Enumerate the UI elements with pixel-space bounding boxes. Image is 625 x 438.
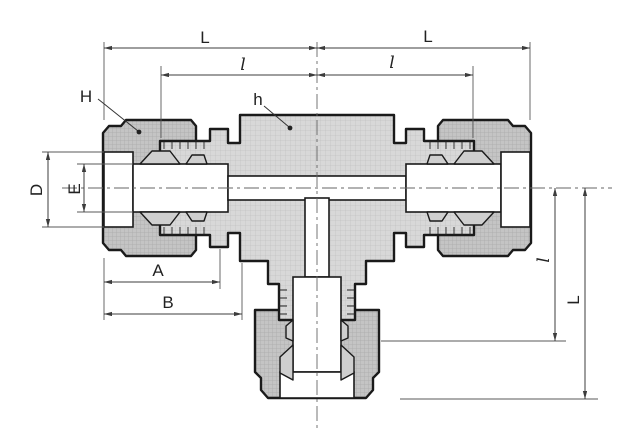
dim-label-L-right: L (564, 295, 583, 304)
dim-label-E: E (65, 183, 84, 194)
dim-label-l-right: l (534, 257, 554, 262)
dim-label-D: D (27, 184, 46, 196)
dim-label-L-top-right: L (423, 27, 432, 46)
dim-label-A: A (152, 261, 164, 280)
technical-drawing-page: L L l l H h D E A B l L (0, 0, 625, 438)
leader-dot-H (137, 130, 142, 135)
tee-fitting-section-drawing: L L l l H h D E A B l L (0, 0, 625, 438)
dim-label-L-top-left: L (200, 28, 209, 47)
left-nut-hole (104, 152, 133, 227)
dim-label-l-top-left: l (240, 55, 245, 75)
leader-dot-h (288, 126, 293, 131)
dim-label-B: B (162, 293, 173, 312)
callout-label-H: H (80, 87, 92, 106)
callout-label-h: h (253, 90, 262, 109)
right-nut-hole (501, 152, 530, 227)
dim-label-l-top-right: l (389, 53, 394, 73)
